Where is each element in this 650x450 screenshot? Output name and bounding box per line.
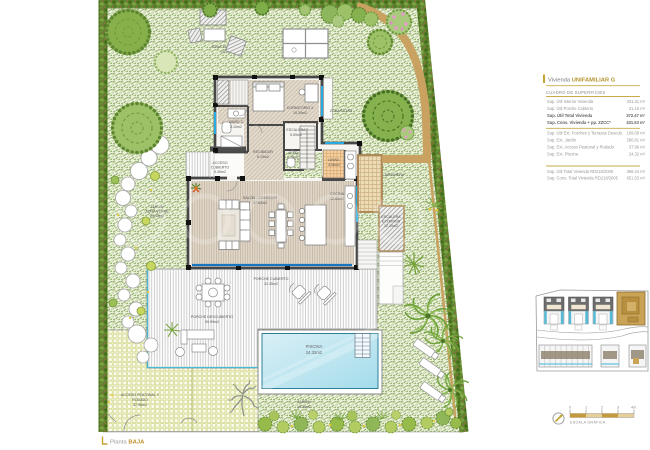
svg-text:5.59m2: 5.59m2 [290,133,302,137]
svg-text:Vivienda UNIFAMILIAR G: Vivienda UNIFAMILIAR G [548,78,616,84]
svg-text:0: 0 [569,406,571,410]
svg-text:BAÑO 3: BAÑO 3 [229,119,242,124]
svg-text:RODADO: RODADO [132,398,148,402]
svg-text:ESCALERA: ESCALERA [286,128,306,132]
svg-text:109.08 m²: 109.08 m² [627,131,646,136]
svg-text:PORCHE DESCUBIERTO: PORCHE DESCUBIERTO [191,315,233,319]
svg-text:37.96 m²: 37.96 m² [629,145,646,150]
svg-text:8.19m2: 8.19m2 [257,155,269,159]
svg-text:CUBIERTO: CUBIERTO [211,166,230,170]
svg-text:Planta BAJA: Planta BAJA [110,440,145,446]
svg-text:37.96m2: 37.96m2 [133,403,147,407]
svg-text:3: 3 [617,406,619,410]
svg-text:24.32m2: 24.32m2 [306,350,323,355]
svg-text:ACCESO PEATONAL Y: ACCESO PEATONAL Y [121,393,160,397]
svg-text:Sup. Cons. Vivienda + pp. ZZCC: Sup. Cons. Vivienda + pp. ZZCC* [547,120,611,125]
svg-text:651.53 m²: 651.53 m² [627,176,646,181]
svg-text:372.47 m²: 372.47 m² [626,113,645,118]
svg-text:ASEO: ASEO [288,151,298,155]
svg-text:15.36m2: 15.36m2 [297,405,311,409]
svg-text:LAVAD.: LAVAD. [328,158,340,162]
svg-text:2: 2 [601,406,603,410]
svg-text:Sup. Útil Total Vivienda RD218: Sup. Útil Total Vivienda RD218/2005 [547,169,614,174]
svg-text:ESCALA GRÁFICA: ESCALA GRÁFICA [570,421,606,425]
svg-text:Sup. Ext. Acceso Peatonal y Ro: Sup. Ext. Acceso Peatonal y Rodado [547,145,615,150]
svg-text:Sup. Útil Porche Cubierto: Sup. Útil Porche Cubierto [547,106,594,111]
svg-text:31.35m2: 31.35m2 [264,282,278,286]
svg-text:331.31 m²: 331.31 m² [627,99,646,104]
svg-text:4m: 4m [631,406,636,410]
svg-text:EXTERIOR: EXTERIOR [382,220,401,224]
svg-text:Sup. Útil Interior Vivienda: Sup. Útil Interior Vivienda [547,99,594,104]
svg-text:Sup. Ext. Piscina: Sup. Ext. Piscina [547,152,579,157]
svg-text:366.44 m²: 366.44 m² [627,169,646,174]
svg-text:Sup. Ext. Jardín: Sup. Ext. Jardín [547,138,577,143]
svg-text:Sup. Útil Ext. Porches y Terra: Sup. Útil Ext. Porches y Terrazas Descub… [547,131,623,136]
svg-text:CUADRO DE SUPERFICIES: CUADRO DE SUPERFICIES [546,90,605,95]
svg-text:Sup. Cons. Total Vivienda RD21: Sup. Cons. Total Vivienda RD218/2005 [547,176,619,181]
svg-text:24.32 m²: 24.32 m² [629,152,646,157]
svg-text:ZONA ESTAR: ZONA ESTAR [330,109,353,113]
svg-text:280.81 m²: 280.81 m² [627,138,646,143]
svg-text:431.53 m²: 431.53 m² [626,120,645,125]
svg-text:12.10m2: 12.10m2 [384,224,398,228]
svg-text:Sup. Útil Total Vivienda: Sup. Útil Total Vivienda [547,113,593,118]
svg-text:PORCHE CUBIERTO: PORCHE CUBIERTO [254,277,289,281]
svg-text:4.56m2: 4.56m2 [328,163,340,167]
svg-text:41.16 m²: 41.16 m² [629,106,646,111]
svg-text:ACCESO: ACCESO [212,161,227,165]
svg-text:JARDIN: JARDIN [298,400,311,404]
svg-text:0.70m2: 0.70m2 [287,156,299,160]
svg-text:1: 1 [585,406,587,410]
svg-text:RECIBIDOR: RECIBIDOR [253,150,273,154]
svg-text:15.39m2: 15.39m2 [293,111,307,115]
svg-text:3.10m2: 3.10m2 [230,125,242,129]
svg-text:59.99m2: 59.99m2 [205,320,219,324]
svg-text:ESCALERA: ESCALERA [381,215,401,219]
svg-text:JARDINERA: JARDINERA [384,173,405,177]
svg-text:5.45m2: 5.45m2 [214,170,226,174]
svg-text:PISCINA: PISCINA [306,344,323,349]
svg-text:DORMITORIO 4: DORMITORIO 4 [287,106,313,110]
svg-text:ZONA VERDE: ZONA VERDE [145,210,169,214]
